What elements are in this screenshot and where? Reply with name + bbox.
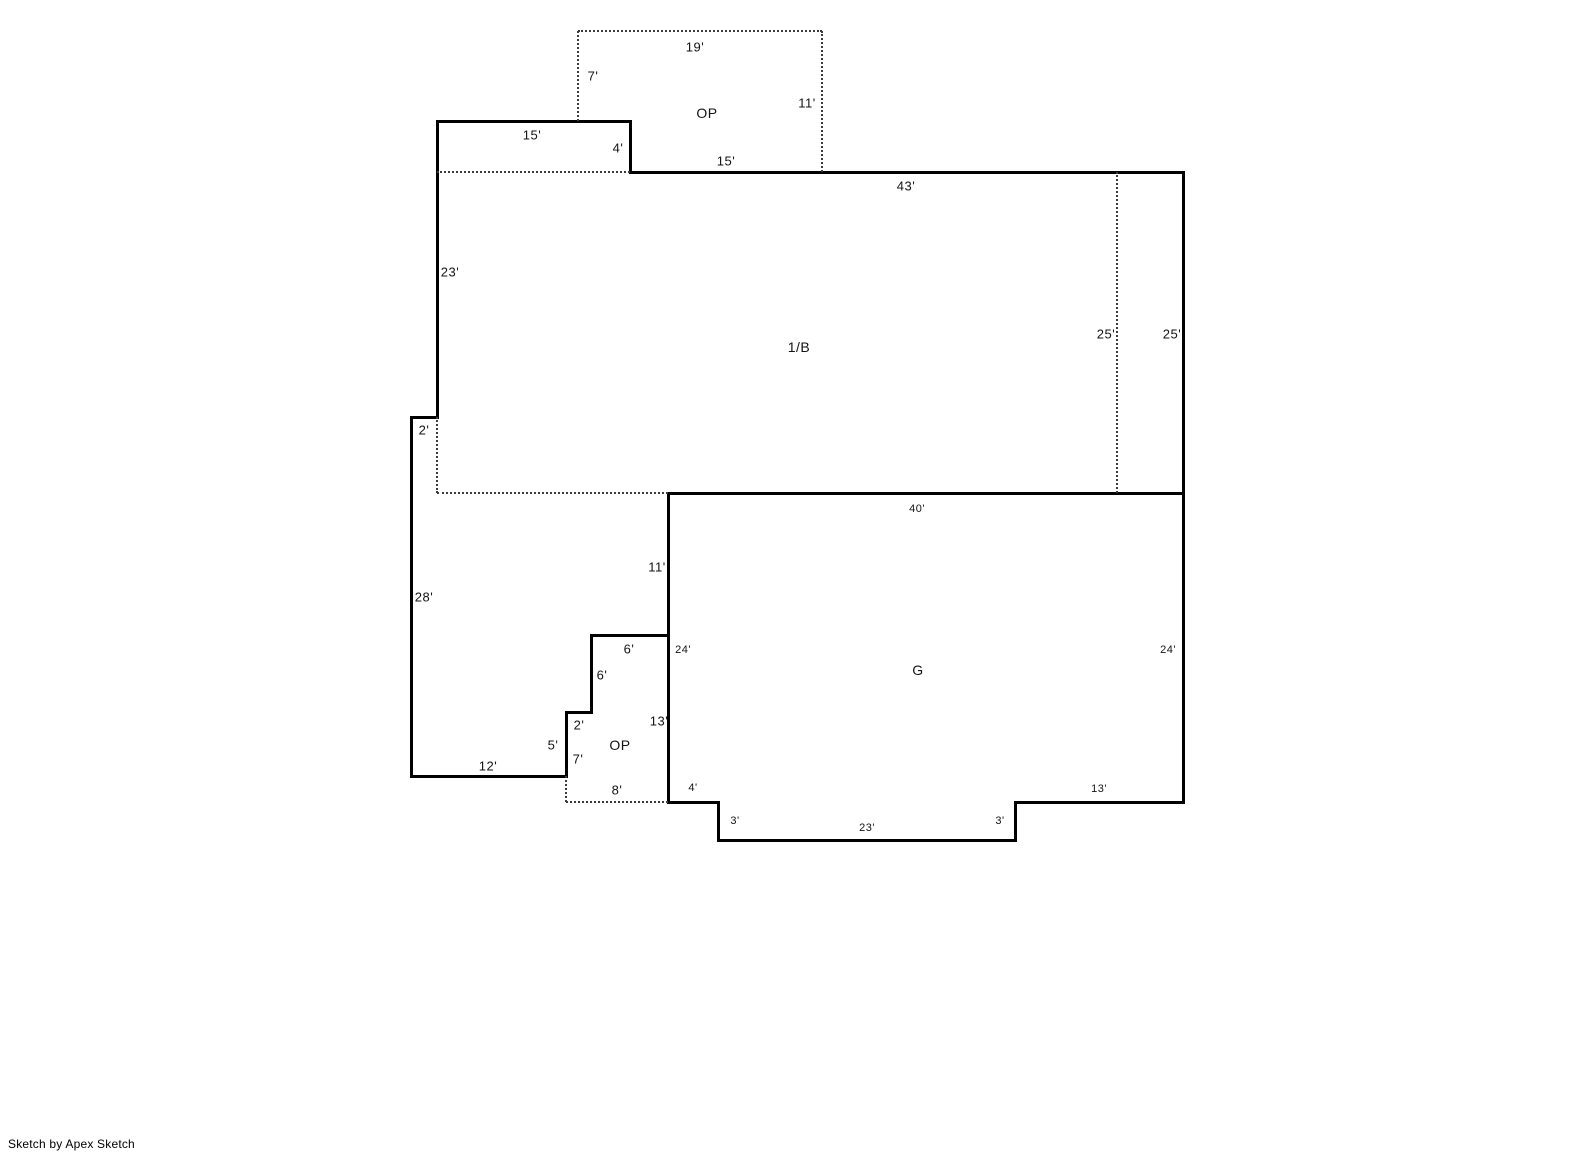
dimension-label: 13' xyxy=(650,714,668,729)
dotted-line-segment xyxy=(437,171,630,173)
dotted-line-segment xyxy=(437,492,668,494)
dimension-label: 12' xyxy=(479,759,497,774)
wall-segment xyxy=(410,416,439,419)
wall-segment xyxy=(717,839,1017,842)
dotted-line-segment xyxy=(436,417,438,493)
wall-segment xyxy=(1014,801,1185,804)
dimension-label: 11' xyxy=(798,96,815,111)
dimension-label: 15' xyxy=(523,128,541,143)
dotted-line-segment xyxy=(578,30,822,32)
dotted-line-segment xyxy=(565,776,567,802)
dimension-label: 43' xyxy=(897,179,915,194)
dotted-line-segment xyxy=(577,31,579,121)
wall-segment xyxy=(436,120,632,123)
wall-segment xyxy=(667,801,720,804)
dimension-label: 6' xyxy=(597,668,608,683)
area-label-garage: G xyxy=(912,662,923,678)
dotted-line-segment xyxy=(1116,172,1118,493)
dimension-label: 6' xyxy=(624,642,635,657)
dimension-label: 4' xyxy=(613,141,624,156)
wall-segment xyxy=(629,120,632,174)
wall-segment xyxy=(565,711,568,778)
wall-segment xyxy=(565,711,593,714)
wall-segment xyxy=(590,634,593,714)
dimension-label: 25' xyxy=(1163,327,1181,342)
dimension-label: 2' xyxy=(574,718,585,733)
area-label-open-porch-top: OP xyxy=(696,105,717,121)
dotted-line-segment xyxy=(566,801,668,803)
dimension-label: 11' xyxy=(648,560,665,575)
area-label-first-floor-basement: 1/B xyxy=(788,339,811,355)
dimension-label: 3' xyxy=(730,815,739,827)
wall-segment xyxy=(410,416,413,778)
wall-segment xyxy=(590,634,670,637)
area-label-open-porch-bottom: OP xyxy=(609,737,630,753)
wall-segment xyxy=(436,120,439,419)
dimension-label: 19' xyxy=(686,40,704,55)
dimension-label: 7' xyxy=(573,752,584,767)
dotted-line-segment xyxy=(821,31,823,172)
dimension-label: 28' xyxy=(415,590,433,605)
wall-segment xyxy=(667,492,670,804)
floorplan-canvas: Sketch by Apex Sketch 19'7'11'15'4'15'43… xyxy=(0,0,1585,1163)
dimension-label: 25' xyxy=(1097,327,1115,342)
wall-segment xyxy=(1182,171,1185,804)
dimension-label: 4' xyxy=(688,782,697,794)
wall-segment xyxy=(717,801,720,842)
dimension-label: 13' xyxy=(1091,783,1107,795)
sketch-credit-text: Sketch by Apex Sketch xyxy=(8,1137,135,1151)
wall-segment xyxy=(410,775,568,778)
dimension-label: 23' xyxy=(859,822,875,834)
dimension-label: 3' xyxy=(995,815,1004,827)
dimension-label: 5' xyxy=(548,738,559,753)
dimension-label: 23' xyxy=(441,265,459,280)
dimension-label: 24' xyxy=(675,644,691,656)
wall-segment xyxy=(667,492,1185,495)
wall-segment xyxy=(629,171,1185,174)
dimension-label: 15' xyxy=(717,154,735,169)
dimension-label: 7' xyxy=(588,69,599,84)
dimension-label: 24' xyxy=(1160,644,1176,656)
dimension-label: 8' xyxy=(612,783,623,798)
dimension-label: 2' xyxy=(419,423,430,438)
dimension-label: 40' xyxy=(909,503,925,515)
wall-segment xyxy=(1014,801,1017,842)
